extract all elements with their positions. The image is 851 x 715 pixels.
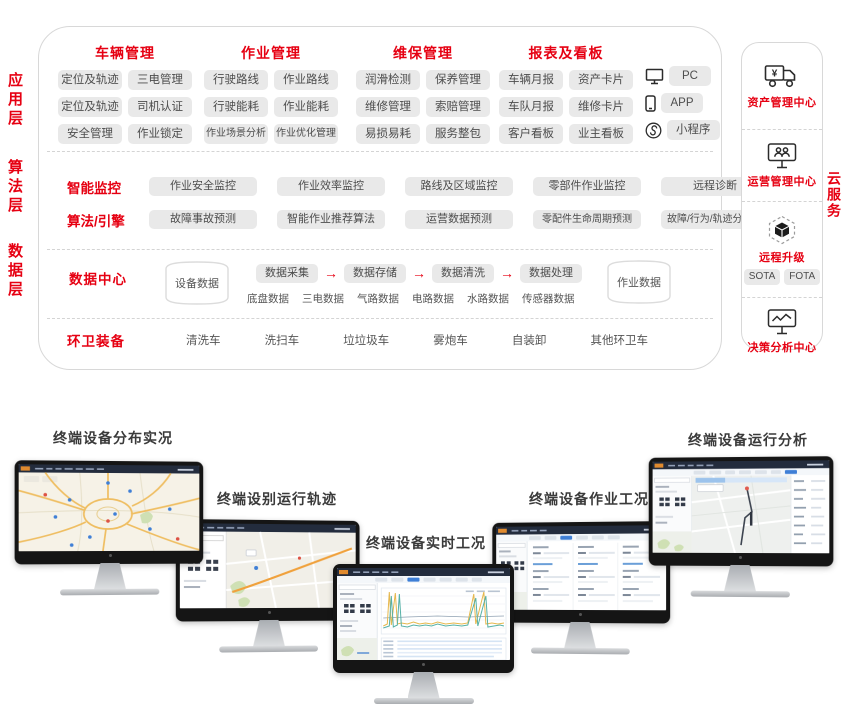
feature-chip: 资产卡片 [569,70,633,90]
device-channel: APP [645,93,720,113]
monitor-bezel [492,521,670,623]
monitor-label-analysis: 终端设备运行分析 [688,430,808,450]
feature-chip: 作业优化管理 [274,124,338,144]
equipment-list: 清洗车洗扫车垃垃圾车雾炮车自装卸其他环卫车 [186,332,648,348]
ota-chip: FOTA [784,269,820,285]
cloud-services-label: 云服务 [828,171,844,219]
equipment-title: 环卫装备 [67,330,125,350]
monitor-stand [724,565,756,591]
cylinder-label: 作业数据 [605,259,673,305]
pipeline-step: 数据处理 [520,264,582,283]
algo-chip: 作业效率监控 [277,177,385,196]
device-chip: 小程序 [667,120,720,140]
analysis-map-screen [653,460,830,553]
miniprogram-icon [645,122,662,139]
feature-chip: 定位及轨迹 [58,97,122,117]
feature-chip: 业主看板 [569,124,633,144]
monitor-label-work: 终端设备作业工况 [529,489,649,509]
feature-chip: 车队月报 [499,97,563,117]
feature-chip: 行驶能耗 [204,97,268,117]
feature-chip: 维修卡片 [569,97,633,117]
monitor-chin [180,608,356,618]
app-chip-grid: 润滑检测保养管理维修管理索赔管理易损易耗服务整包 [356,70,490,144]
app-chip-grid: 车辆月报资产卡片车队月报维修卡片客户看板业主看板 [499,70,633,144]
flow-arrow-icon: → [412,264,426,283]
app-group-title: 车辆管理 [58,43,192,63]
equipment-item: 清洗车 [186,332,221,348]
monitor-analysis-map [649,456,834,598]
monitor-stand [94,563,126,589]
monitor-stand [564,622,596,648]
feature-chip: 服务整包 [426,124,490,144]
app-chip-grid: 行驶路线作业路线行驶能耗作业能耗作业场景分析作业优化管理 [204,70,338,144]
app-chip-grid: 定位及轨迹三电管理定位及轨迹司机认证安全管理作业锁定 [58,70,192,144]
cylinder-label: 设备数据 [163,260,231,306]
monitor-chart-icon [766,308,798,335]
pipeline-step: 数据清洗 [432,264,494,283]
cloud-services-panel: ¥资产管理中心运营管理中心远程升级SOTAFOTA决策分析中心 [741,42,823,350]
algo-chip: 故障事故预测 [149,210,257,229]
algo-row-title: 算法/引擎 [67,210,129,230]
monitor-distribution-map [15,460,204,596]
feature-chip: 行驶路线 [204,70,268,90]
feature-chip: 三电管理 [128,70,192,90]
monitor-stand [253,620,285,646]
device-channels: PCAPP小程序 [645,66,720,140]
feature-chip: 作业锁定 [128,124,192,144]
equipment-item: 雾炮车 [433,332,468,348]
data-source-label: 电路数据 [412,291,454,306]
data-pipeline: 数据采集→数据存储→数据清洗→数据处理 [256,264,582,283]
truck-yen-icon: ¥ [764,62,800,90]
device-channel: PC [645,66,720,86]
equipment-item: 垃垃圾车 [343,332,389,348]
feature-chip: 定位及轨迹 [58,70,122,90]
device-channel: 小程序 [645,120,720,140]
cube-hex-icon [766,215,798,245]
data-source-label: 气路数据 [357,291,399,306]
feature-chip: 车辆月报 [499,70,563,90]
monitor-chin [653,553,830,563]
map-overview-screen [19,464,200,551]
trajectory-graphic [180,523,356,608]
monitor-bezel [333,564,514,673]
app-group: 车辆管理定位及轨迹三电管理定位及轨迹司机认证安全管理作业锁定 [58,43,192,144]
algo-row: 算法/引擎故障事故预测智能作业推荐算法运营数据预测零配件生命周期预测故障/行为/… [67,210,779,229]
algo-chip: 零部件作业监控 [533,177,641,196]
monitor-chin [496,610,666,620]
realtime-charts-screen [337,568,510,660]
feature-chip: 保养管理 [426,70,490,90]
device-chip: APP [661,93,703,113]
algo-chip: 智能作业推荐算法 [277,210,385,229]
feature-chip: 司机认证 [128,97,192,117]
monitor-label-trajectory: 终端设别运行轨迹 [217,489,337,509]
pc-icon [645,68,664,85]
svg-text:¥: ¥ [772,69,778,80]
app-group-title: 维保管理 [356,43,490,63]
algo-chip: 作业安全监控 [149,177,257,196]
data-source-label: 传感器数据 [522,291,575,306]
data-source-label: 水路数据 [467,291,509,306]
cloud-section-title: 远程升级 [759,249,805,265]
feature-chip: 易损易耗 [356,124,420,144]
data-center-title: 数据中心 [69,268,127,288]
cloud-section: 运营管理中心 [742,130,822,202]
layer-label-algorithm: 算法层 [5,159,23,216]
pipeline-step: 数据存储 [344,264,406,283]
algo-chip: 路线及区域监控 [405,177,513,196]
feature-chip: 客户看板 [499,124,563,144]
feature-chip: 作业场景分析 [204,124,268,144]
cloud-section: ¥资产管理中心 [742,43,822,130]
monitor-base [531,648,630,655]
cloud-section-title: 决策分析中心 [748,339,817,355]
analysis-graphic [653,460,830,553]
cloud-section-chips: SOTAFOTA [744,269,820,285]
app-group: 报表及看板车辆月报资产卡片车队月报维修卡片客户看板业主看板 [499,43,633,144]
feature-chip: 作业路线 [274,70,338,90]
app-group: 作业管理行驶路线作业路线行驶能耗作业能耗作业场景分析作业优化管理 [204,43,338,144]
ota-chip: SOTA [744,269,780,285]
layer-label-application: 应用层 [5,72,23,129]
monitor-base [374,698,474,704]
data-source-label: 三电数据 [302,291,344,306]
layer-divider [47,249,713,250]
monitor-base [691,591,790,598]
cloud-section: 远程升级SOTAFOTA [742,202,822,298]
feature-chip: 安全管理 [58,124,122,144]
feature-chip: 索赔管理 [426,97,490,117]
data-sources: 底盘数据三电数据气路数据电路数据水路数据传感器数据 [247,291,575,306]
work-table-screen [496,525,666,610]
algo-row: 智能监控作业安全监控作业效率监控路线及区域监控零部件作业监控远程诊断 [67,177,769,196]
equipment-item: 其他环卫车 [590,332,648,348]
layer-divider [47,151,713,152]
device-data-cylinder: 设备数据 [163,260,231,306]
monitor-base [219,646,318,653]
architecture-box: 车辆管理定位及轨迹三电管理定位及轨迹司机认证安全管理作业锁定作业管理行驶路线作业… [38,26,722,370]
cloud-section-title: 资产管理中心 [748,94,817,110]
feature-chip: 维修管理 [356,97,420,117]
layer-divider [47,318,713,319]
cloud-section-title: 运营管理中心 [748,173,817,189]
trajectory-map-screen [180,523,356,608]
monitor-stand [408,672,440,698]
algo-row-title: 智能监控 [67,177,129,197]
algo-chip: 零配件生命周期预测 [533,210,641,229]
monitor-bezel [176,519,360,621]
work-table-graphic [496,525,666,610]
equipment-item: 自装卸 [512,332,547,348]
monitor-work-table [492,521,670,655]
work-data-cylinder: 作业数据 [605,259,673,305]
device-chip: PC [669,66,711,86]
app-group-title: 报表及看板 [499,43,633,63]
monitor-label-realtime: 终端设备实时工况 [366,533,486,553]
data-source-label: 底盘数据 [247,291,289,306]
flow-arrow-icon: → [500,264,514,283]
app-group: 维保管理润滑检测保养管理维修管理索赔管理易损易耗服务整包 [356,43,490,144]
feature-chip: 润滑检测 [356,70,420,90]
app-group-title: 作业管理 [204,43,338,63]
monitor-chin [19,551,200,561]
monitor-bezel [649,456,834,566]
map-graphic [19,464,200,551]
monitor-realtime-charts [333,564,514,704]
equipment-item: 洗扫车 [265,332,300,348]
monitor-bezel [15,460,204,564]
layer-label-data: 数据层 [5,243,23,300]
monitor-users-icon [766,142,798,169]
monitor-chin [337,660,510,669]
monitor-base [60,589,159,596]
monitor-trajectory-map [176,519,360,653]
algo-chip: 运营数据预测 [405,210,513,229]
monitor-label-distribution: 终端设备分布实况 [53,428,173,448]
phone-icon [645,95,656,112]
pipeline-step: 数据采集 [256,264,318,283]
flow-arrow-icon: → [324,264,338,283]
realtime-chart-graphic [337,568,510,660]
feature-chip: 作业能耗 [274,97,338,117]
cloud-section: 决策分析中心 [742,298,822,364]
